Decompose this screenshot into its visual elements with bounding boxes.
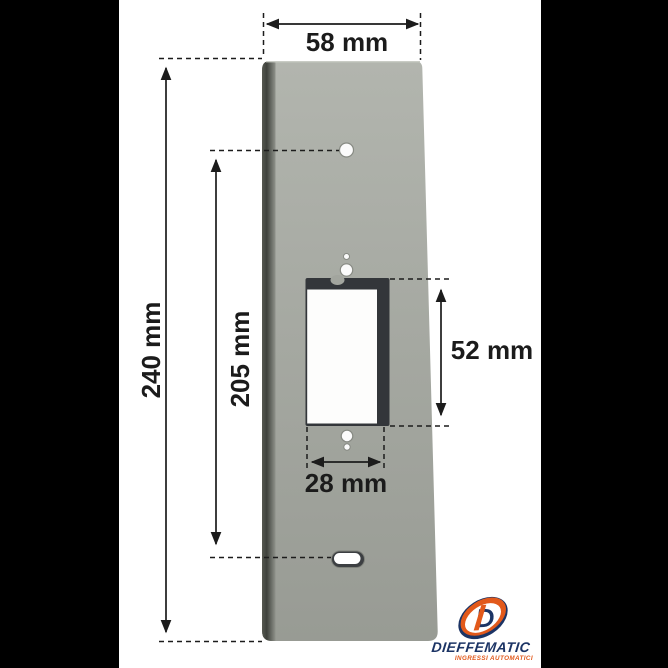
upper-medium-hole: [340, 264, 352, 276]
product-dimension-image: D 58 mm 240 mm 205 mm 52 mm 28 mm DIEFFE…: [0, 0, 668, 668]
bottom-slot-opening: [334, 553, 361, 564]
cutout-width-dimension-label: 28 mm: [286, 469, 406, 497]
lower-medium-hole: [341, 430, 353, 442]
cutout-top-notch: [331, 275, 345, 285]
cutout-height-dimension-label: 52 mm: [432, 336, 552, 364]
plate-technical-drawing: D: [0, 0, 668, 668]
span-dimension-label: 205 mm: [226, 284, 254, 434]
plate-height-dimension-label: 240 mm: [137, 275, 165, 425]
plate-left-bevel-edge: [262, 61, 276, 641]
logo-tagline: INGRESSI AUTOMATICI: [441, 654, 533, 663]
logo-brand-name: DIEFFEMATIC: [423, 639, 539, 655]
cutout-opening: [307, 290, 377, 424]
lower-small-hole: [344, 444, 350, 450]
top-mounting-hole: [340, 143, 354, 157]
upper-small-hole: [344, 254, 350, 260]
plate-width-dimension-label: 58 mm: [287, 28, 407, 56]
